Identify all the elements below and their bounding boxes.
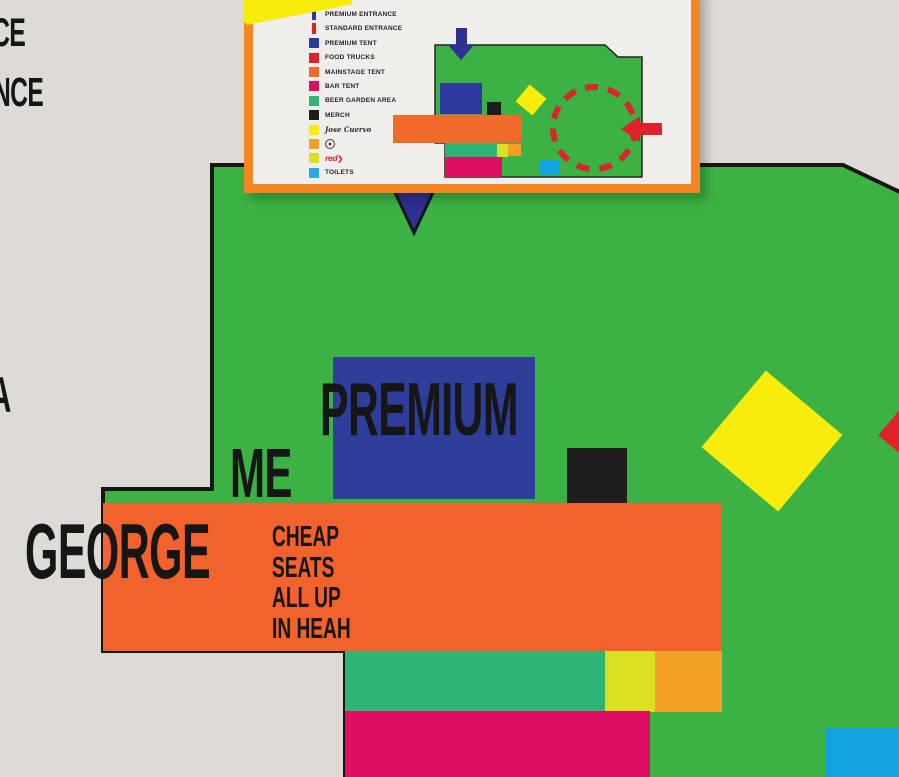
red-brand-square-shape [605,651,655,712]
overview-inset-card: PREMIUM ENTRANCE STANDARD ENTRANCE PREMI… [244,0,700,193]
cheap-seats-line-3: ALL UP [272,583,351,614]
legend-label: FOOD TRUCKS [325,54,375,61]
legend-row-circle-brand [309,139,402,150]
beer-garden-swatch-icon [309,96,319,106]
mainstage-tent-swatch-icon [309,67,319,77]
circular-brand-logo-icon [325,139,335,149]
legend-row-premium-tent: PREMIUM TENT [309,38,402,49]
legend-row-beer-garden: BEER GARDEN AREA [309,95,402,106]
toilets-swatch-icon [309,168,319,178]
legend-label: PREMIUM ENTRANCE [325,11,397,18]
legend-row-standard-entrance: STANDARD ENTRANCE [309,23,402,34]
legend-row-merch: MERCH [309,110,402,121]
inset-legend: PREMIUM ENTRANCE STANDARD ENTRANCE PREMI… [309,9,402,182]
premium-tent-swatch-icon [309,38,319,48]
beer-garden-strip-shape [345,651,605,711]
legend-label: TOILETS [325,169,354,176]
cheap-seats-line-1: CHEAP [272,522,351,553]
legend-row-red-brand: red❯ [309,153,402,164]
me-label: ME [230,438,292,508]
legend-row-premium-entrance: PREMIUM ENTRANCE [309,9,402,20]
red-brand-logo: red❯ [325,153,343,163]
legend-label: BEER GARDEN AREA [325,97,396,104]
toilets-shape [825,728,899,777]
legend-row-food-trucks: FOOD TRUCKS [309,52,402,63]
bar-tent-shape [345,711,650,777]
cheap-seats-line-2: SEATS [272,553,351,584]
george-label: GEORGE [25,512,210,590]
red-brand-swatch-icon [309,153,319,163]
festival-map-page: PREMIUM ME GEORGE CHEAP SEATS ALL UP IN … [0,0,899,777]
merch-shape [567,448,627,503]
red-brand-logo-text: red [325,153,337,163]
premium-tent-label: PREMIUM [320,372,518,447]
legend-label: BAR TENT [325,83,359,90]
legend-row-bar-tent: BAR TENT [309,81,402,92]
edge-text-area: A [0,370,11,420]
legend-row-toilets: TOILETS [309,167,402,178]
legend-row-mainstage-tent: MAINSTAGE TENT [309,67,402,78]
food-trucks-swatch-icon [309,53,319,63]
merch-swatch-icon [309,110,319,120]
circle-brand-swatch-icon [309,139,319,149]
bar-tent-swatch-icon [309,81,319,91]
jose-cuervo-swatch-icon [309,125,319,135]
cheap-seats-label: CHEAP SEATS ALL UP IN HEAH [272,522,351,644]
jose-cuervo-logo: Jose Cuervo [325,125,371,134]
cheap-seats-line-4: IN HEAH [272,614,351,645]
legend-row-jose-cuervo: Jose Cuervo [309,124,402,135]
legend-label: MAINSTAGE TENT [325,69,385,76]
legend-label: MERCH [325,112,350,119]
sponsor-orange-square-shape [655,651,722,712]
edge-text-entrance-2: NCE [0,72,43,113]
standard-entrance-swatch-icon [309,23,319,34]
legend-label: STANDARD ENTRANCE [325,25,402,32]
red-brand-logo-glyph-icon: ❯ [337,156,343,163]
legend-label: PREMIUM TENT [325,40,377,47]
edge-text-entrance-1: CE [0,13,25,53]
